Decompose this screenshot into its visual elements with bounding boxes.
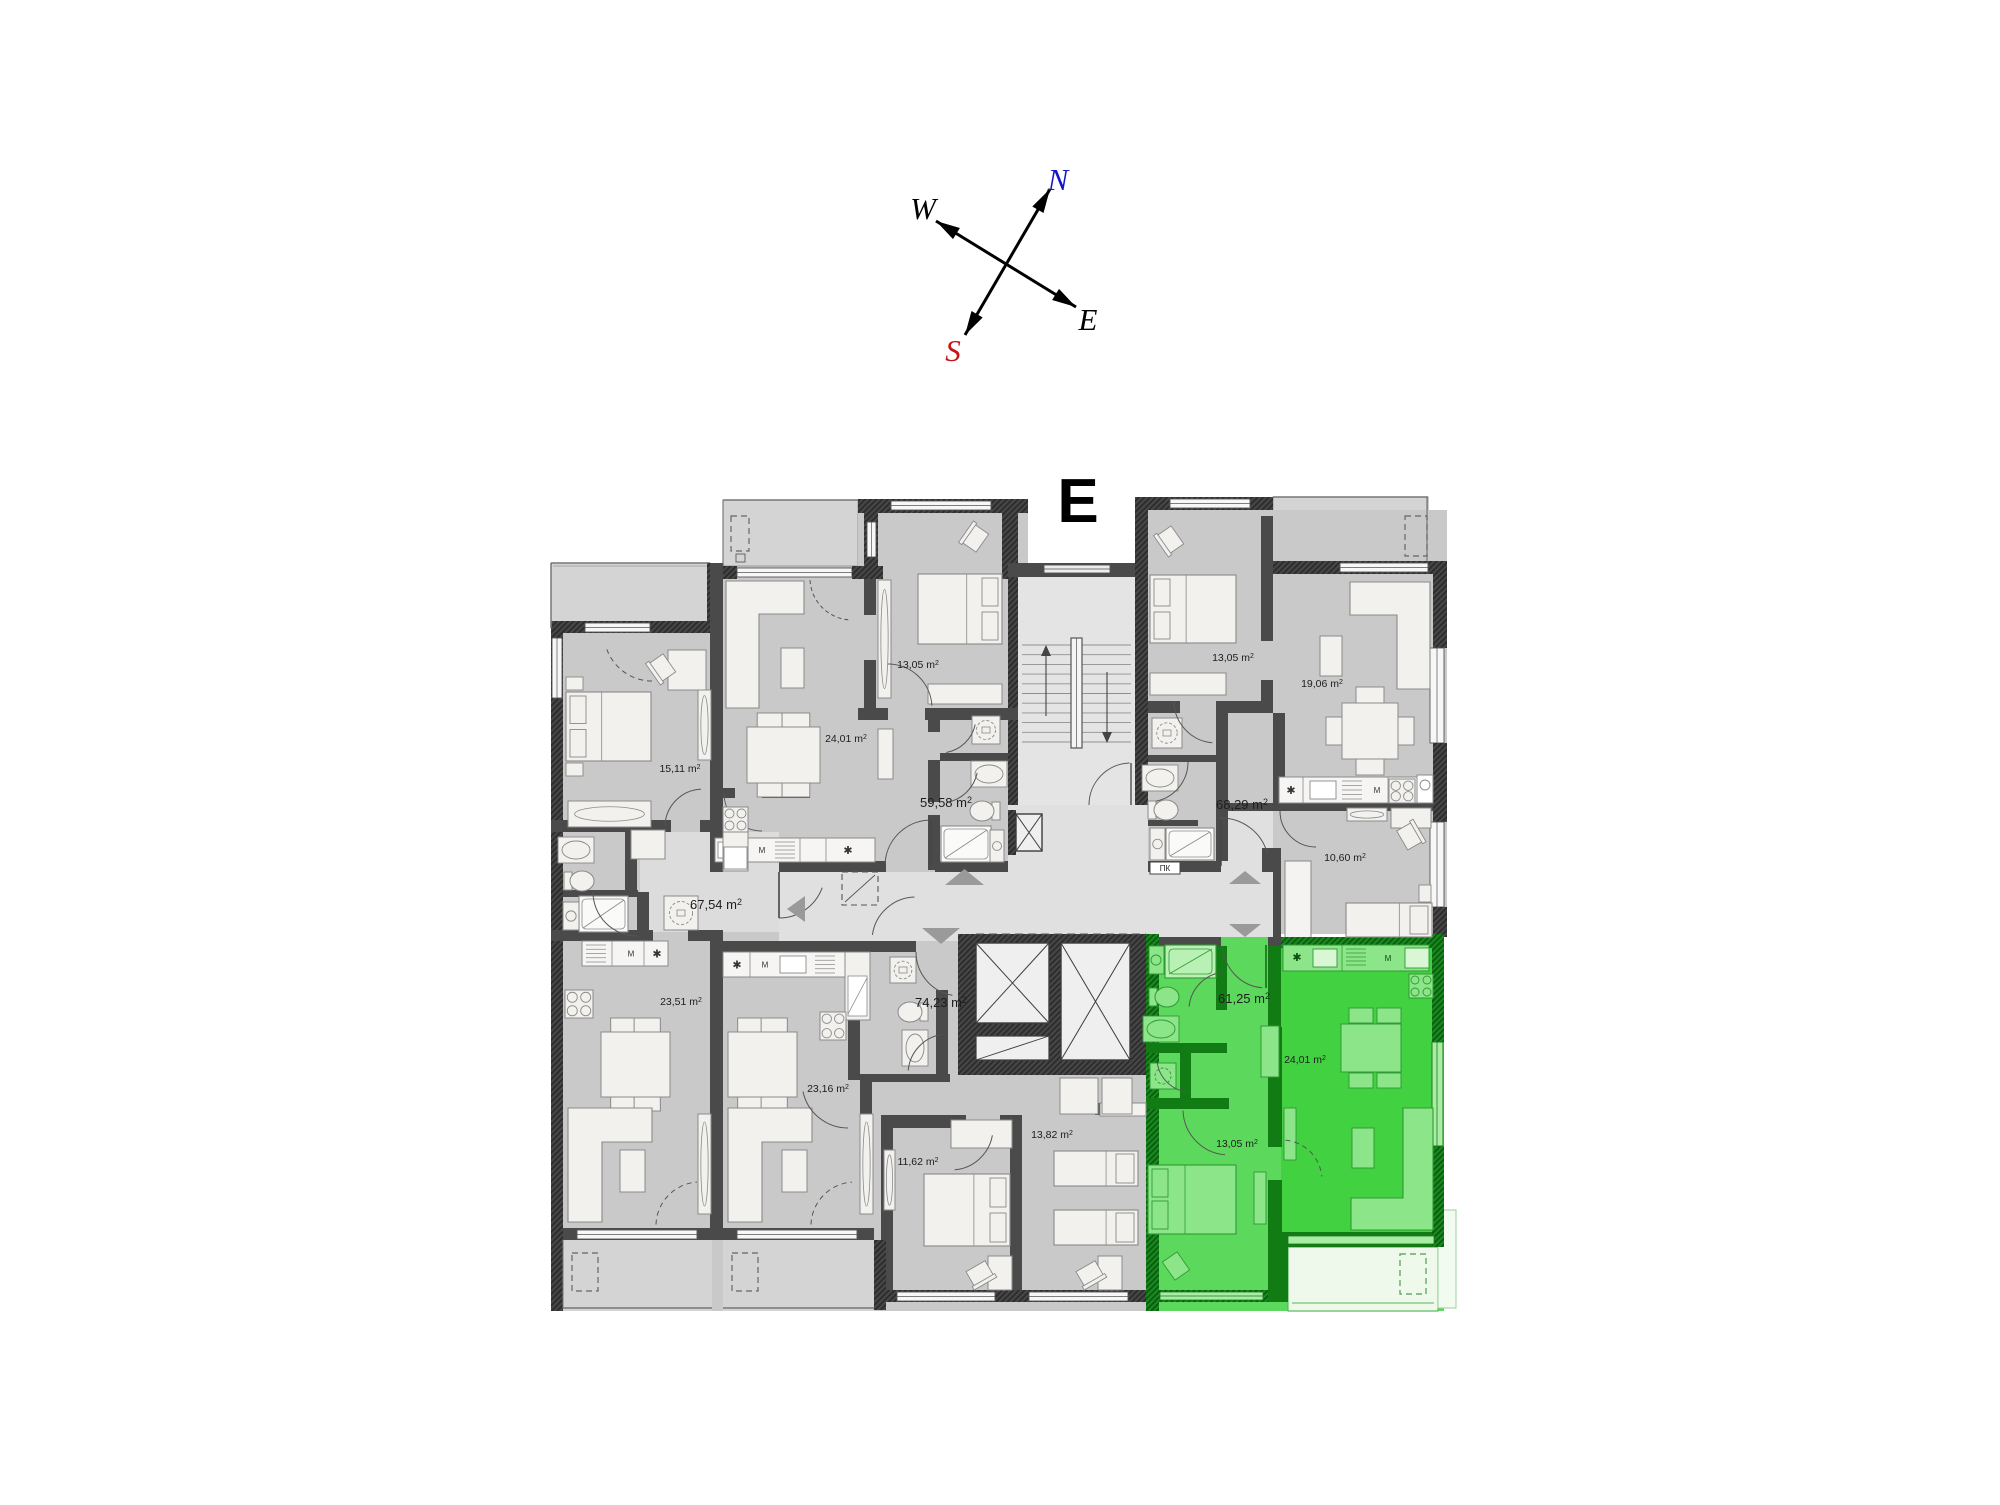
svg-text:M: M (1385, 954, 1392, 963)
svg-text:15,11 m2: 15,11 m2 (659, 763, 700, 775)
svg-text:✱: ✱ (732, 960, 741, 972)
svg-text:61,25 m2: 61,25 m2 (1218, 991, 1270, 1006)
svg-text:✱: ✱ (652, 949, 661, 961)
svg-text:24,01 m2: 24,01 m2 (825, 733, 867, 745)
svg-text:59,58 m2: 59,58 m2 (920, 795, 972, 810)
svg-text:E: E (1078, 302, 1098, 337)
svg-text:24,01 m2: 24,01 m2 (1284, 1054, 1326, 1066)
svg-text:13,05 m2: 13,05 m2 (1216, 1138, 1258, 1150)
svg-text:23,16 m2: 23,16 m2 (807, 1083, 849, 1095)
svg-text:13,05 m2: 13,05 m2 (897, 659, 939, 671)
svg-text:N: N (1047, 162, 1071, 197)
svg-text:11,62 m2: 11,62 m2 (897, 1156, 938, 1168)
svg-text:S: S (945, 333, 961, 368)
svg-text:✱: ✱ (1286, 785, 1295, 797)
svg-text:67,54 m2: 67,54 m2 (690, 897, 742, 912)
svg-text:✱: ✱ (843, 845, 852, 857)
svg-text:M: M (628, 950, 635, 959)
svg-text:68,29 m2: 68,29 m2 (1216, 797, 1268, 812)
svg-text:13,82 m2: 13,82 m2 (1031, 1129, 1073, 1141)
svg-text:M: M (759, 846, 766, 855)
svg-text:13,05 m2: 13,05 m2 (1212, 652, 1254, 664)
svg-text:ПК: ПК (1160, 864, 1171, 873)
svg-text:74,23 m2: 74,23 m2 (915, 995, 967, 1010)
svg-text:10,60 m2: 10,60 m2 (1324, 852, 1366, 864)
svg-text:M: M (1374, 786, 1381, 795)
svg-text:E: E (1057, 467, 1098, 536)
svg-text:23,51 m2: 23,51 m2 (660, 996, 702, 1008)
svg-text:19,06 m2: 19,06 m2 (1301, 678, 1343, 690)
svg-text:✱: ✱ (1292, 952, 1301, 964)
svg-text:M: M (762, 961, 769, 970)
svg-text:W: W (910, 191, 939, 226)
